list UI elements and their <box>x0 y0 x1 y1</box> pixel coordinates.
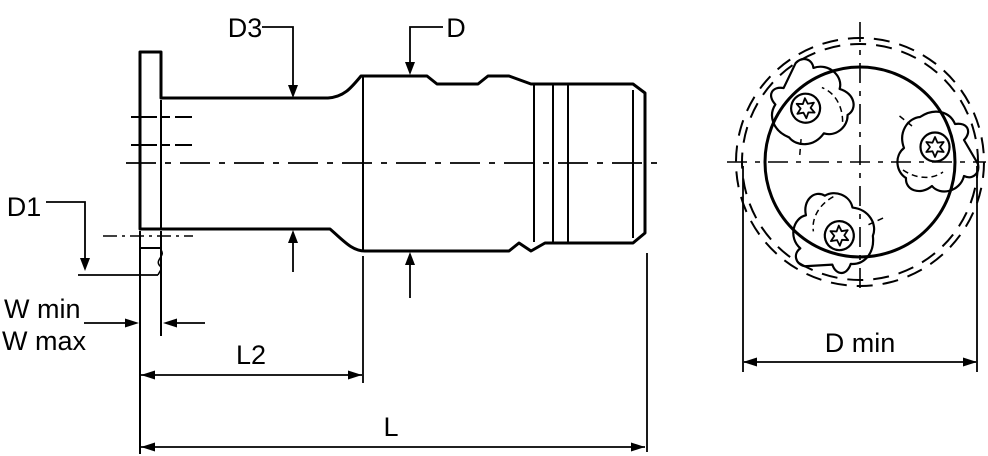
dim-label-d3: D3 <box>228 13 263 43</box>
dimension-w: W min W max <box>2 294 205 356</box>
dim-label-d1: D1 <box>7 192 42 222</box>
dim-label-w-min: W min <box>4 294 81 324</box>
torx-star-icon <box>826 223 852 248</box>
dim-label-w-max: W max <box>2 326 86 356</box>
dimension-d: D <box>405 13 466 298</box>
front-view: D min <box>727 22 986 372</box>
cutting-insert <box>752 47 864 159</box>
dimension-l2: L2 <box>141 340 362 380</box>
cutting-insert <box>780 182 888 291</box>
dim-label-d: D <box>446 13 466 43</box>
side-view: D3 D D1 W min W max <box>2 13 662 454</box>
dimension-l: L <box>141 412 645 452</box>
technical-drawing-canvas: D3 D D1 W min W max <box>0 0 988 456</box>
dimension-d1: D1 <box>7 192 90 271</box>
torx-star-icon <box>792 95 818 121</box>
dim-label-d-min: D min <box>825 328 896 358</box>
dim-label-l2: L2 <box>236 340 266 370</box>
cutter-disc-break <box>78 231 193 454</box>
tool-silhouette <box>140 52 645 251</box>
extension-lines <box>363 253 647 452</box>
torx-star-icon <box>926 137 943 157</box>
cutting-insert <box>897 112 978 192</box>
dim-label-l: L <box>383 412 398 442</box>
dimension-d3: D3 <box>228 13 298 272</box>
